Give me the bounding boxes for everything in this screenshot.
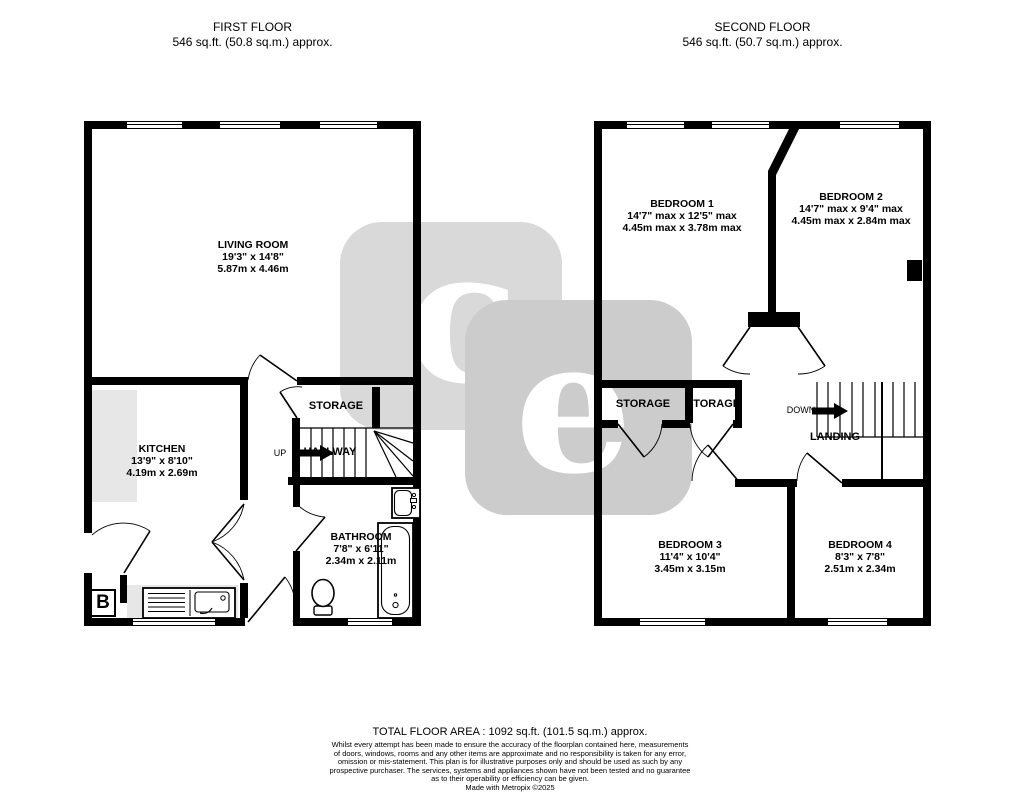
bedroom3-label: BEDROOM 3 11'4" x 10'4" 3.45m x 3.15m <box>610 539 770 575</box>
storage-label-ff: STORAGE <box>286 400 386 412</box>
door-storage-2 <box>690 424 733 457</box>
bathroom-label: BATHROOM 7'8" x 6'11" 2.34m x 2.11m <box>291 531 431 567</box>
bedroom2-label: BEDROOM 2 14'7" max x 9'4" max 4.45m max… <box>776 191 926 227</box>
credit-line: Made with Metropix ©2025 <box>0 784 1020 793</box>
floorplan-page: { "first_floor": {"title": "FIRST FLOOR"… <box>0 0 1020 792</box>
second-floor-plan: BEDROOM 1 14'7" max x 12'5" max 4.45m ma… <box>594 121 931 626</box>
living-room-label: LIVING ROOM 19'3" x 14'8" 5.87m x 4.46m <box>173 239 333 275</box>
kitchen-sink <box>143 588 235 618</box>
up-arrow-icon <box>292 441 340 465</box>
total-floor-area: TOTAL FLOOR AREA : 1092 sq.ft. (101.5 sq… <box>0 726 1020 738</box>
landing-label: LANDING <box>785 431 885 443</box>
diagonal-wall <box>772 125 796 173</box>
first-floor-title-text: FIRST FLOOR <box>84 20 421 35</box>
door-bedroom4 <box>797 453 842 483</box>
down-arrow-icon <box>810 399 854 423</box>
boiler-badge: B <box>90 589 116 617</box>
door-bedroom3 <box>692 445 740 483</box>
kitchen-label: KITCHEN 13'9" x 8'10" 4.19m x 2.69m <box>92 443 232 479</box>
footer: TOTAL FLOOR AREA : 1092 sq.ft. (101.5 sq… <box>0 726 1020 793</box>
bedroom1-label: BEDROOM 1 14'7" max x 12'5" max 4.45m ma… <box>602 198 762 234</box>
door-bedroom1 <box>723 327 750 374</box>
second-floor-title: SECOND FLOOR 546 sq.ft. (50.7 sq.m.) app… <box>594 20 931 50</box>
bedroom4-label: BEDROOM 4 8'3" x 7'8" 2.51m x 2.34m <box>780 539 940 575</box>
second-floor-area-text: 546 sq.ft. (50.7 sq.m.) approx. <box>594 35 931 50</box>
bathroom-sink <box>392 488 420 518</box>
toilet <box>312 580 334 616</box>
door-front <box>248 577 295 622</box>
disclaimer: Whilst every attempt has been made to en… <box>0 741 1020 793</box>
door-storage-1 <box>618 424 662 457</box>
door-living-room <box>248 355 297 381</box>
first-floor-area-text: 546 sq.ft. (50.8 sq.m.) approx. <box>84 35 421 50</box>
door-kitchen-side <box>92 523 150 573</box>
first-floor-title: FIRST FLOOR 546 sq.ft. (50.8 sq.m.) appr… <box>84 20 421 50</box>
boiler-letter: B <box>96 592 110 614</box>
storage-label-sf-2: STORAGE <box>668 398 758 410</box>
door-kitchen-hall <box>212 504 244 580</box>
second-floor-title-text: SECOND FLOOR <box>594 20 931 35</box>
first-floor-plan: LIVING ROOM 19'3" x 14'8" 5.87m x 4.46m … <box>84 121 421 626</box>
door-bedroom2 <box>798 327 825 374</box>
